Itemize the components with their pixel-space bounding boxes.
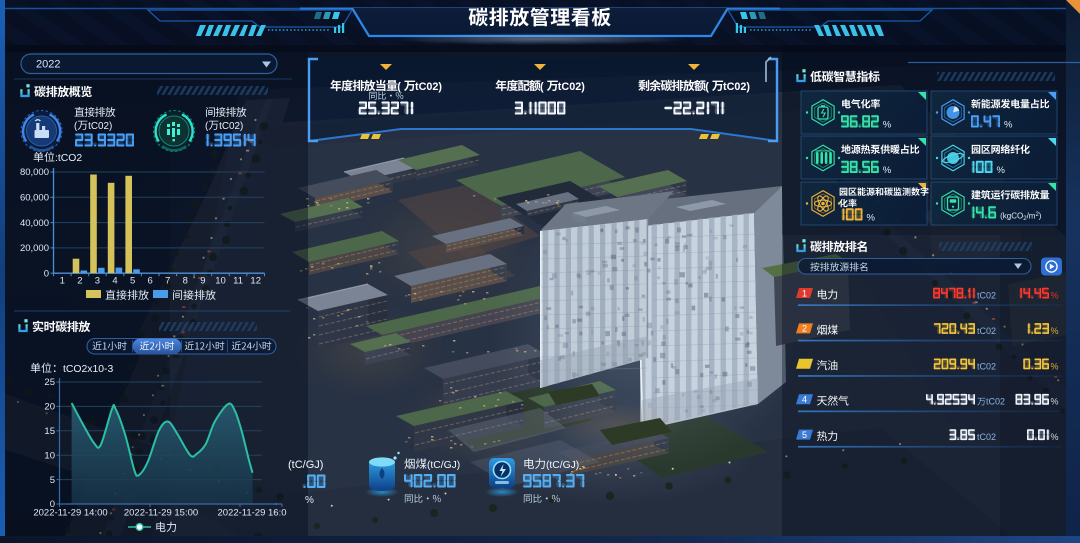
svg-text:2022: 2022: [36, 59, 60, 71]
svg-text:%: %: [883, 165, 892, 176]
svg-text:2: 2: [802, 324, 807, 334]
svg-text:%: %: [1051, 432, 1059, 442]
svg-text:5: 5: [802, 430, 807, 440]
svg-text:(tC/GJ): (tC/GJ): [546, 460, 579, 471]
svg-text:tC02: tC02: [977, 326, 996, 336]
svg-text:11: 11: [233, 276, 243, 287]
svg-text:%: %: [867, 213, 876, 224]
svg-text:8: 8: [183, 276, 188, 287]
svg-text:7: 7: [165, 276, 170, 287]
svg-text:10: 10: [215, 276, 226, 287]
svg-text:4: 4: [112, 276, 117, 287]
svg-text:5: 5: [50, 475, 55, 486]
svg-text:%: %: [997, 165, 1006, 176]
svg-text:%: %: [1051, 291, 1059, 301]
svg-text:1: 1: [802, 288, 807, 298]
svg-text:%: %: [1004, 120, 1013, 131]
svg-text:2022-11-29 16:0: 2022-11-29 16:0: [217, 508, 286, 519]
svg-text:tC02): tC02): [219, 121, 243, 132]
svg-text:60,000: 60,000: [20, 193, 49, 204]
svg-text:tC02: tC02: [986, 397, 1005, 407]
svg-text:1: 1: [60, 276, 65, 287]
svg-text:20: 20: [44, 402, 55, 413]
svg-text:tC02): tC02): [558, 81, 585, 93]
svg-text:tC02): tC02): [88, 121, 112, 132]
svg-text:15: 15: [44, 426, 55, 437]
svg-text:%: %: [1051, 397, 1059, 407]
svg-text:2022-11-29 14:00: 2022-11-29 14:00: [33, 508, 107, 519]
svg-text:(: (: [397, 81, 401, 93]
svg-text:(: (: [540, 81, 544, 93]
svg-text:%: %: [883, 120, 892, 131]
svg-text:40,000: 40,000: [20, 218, 49, 229]
svg-text:tC02: tC02: [977, 432, 996, 442]
svg-text:4: 4: [802, 395, 807, 405]
svg-text:2: 2: [77, 276, 82, 287]
svg-text:(tC/GJ): (tC/GJ): [427, 460, 460, 471]
svg-text:3: 3: [95, 276, 100, 287]
svg-text:%: %: [305, 495, 314, 506]
svg-text:0: 0: [44, 268, 49, 279]
svg-text:12: 12: [250, 276, 261, 287]
svg-text:(: (: [705, 81, 709, 93]
svg-text:5: 5: [130, 276, 135, 287]
svg-text:10: 10: [44, 450, 55, 461]
svg-text:%: %: [1051, 361, 1059, 371]
svg-text::tCO2: :tCO2: [55, 153, 82, 164]
svg-text:(tC/GJ): (tC/GJ): [288, 459, 323, 471]
svg-text:25: 25: [44, 377, 55, 388]
svg-text:tC02: tC02: [977, 361, 996, 371]
svg-text:%: %: [1051, 326, 1059, 336]
svg-text:tC02: tC02: [977, 291, 996, 301]
svg-text:2022-11-29 15:00: 2022-11-29 15:00: [124, 508, 198, 519]
svg-text:9: 9: [200, 276, 205, 287]
svg-text:tC02): tC02): [723, 81, 750, 93]
svg-text:20,000: 20,000: [20, 243, 49, 254]
svg-text:80,000: 80,000: [20, 167, 49, 178]
svg-text:tC02): tC02): [415, 81, 442, 93]
svg-text:tCO2x10-3: tCO2x10-3: [63, 364, 113, 375]
svg-text:6: 6: [148, 276, 153, 287]
